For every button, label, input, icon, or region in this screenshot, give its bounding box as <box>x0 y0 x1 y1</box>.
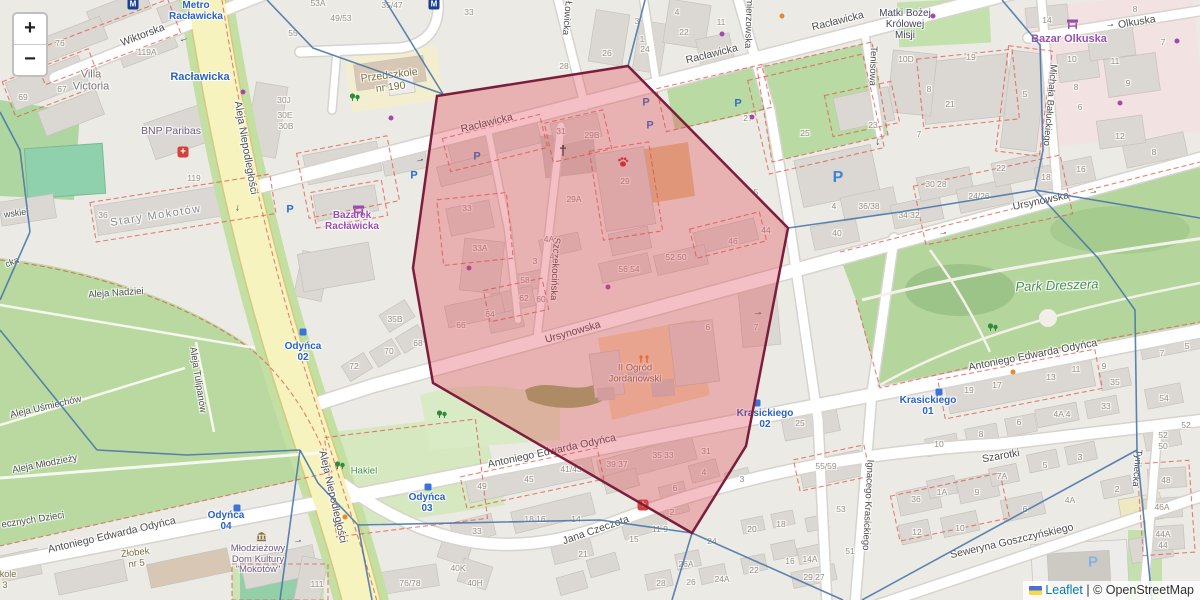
ukraine-flag-icon <box>1029 586 1042 595</box>
attribution-separator: | <box>1083 583 1093 597</box>
zoom-out-button[interactable]: − <box>14 45 46 75</box>
base-map-svg <box>0 0 1200 600</box>
leaflet-link[interactable]: Leaflet <box>1045 583 1083 597</box>
zoom-in-button[interactable]: + <box>14 14 46 45</box>
osm-copyright: © OpenStreetMap <box>1093 583 1194 597</box>
map-canvas[interactable]: WiktorskaRacławickaRacławickaRacławickaU… <box>0 0 1200 600</box>
zoom-control: + − <box>12 12 48 77</box>
attribution-bar: Leaflet | © OpenStreetMap <box>1023 581 1200 600</box>
